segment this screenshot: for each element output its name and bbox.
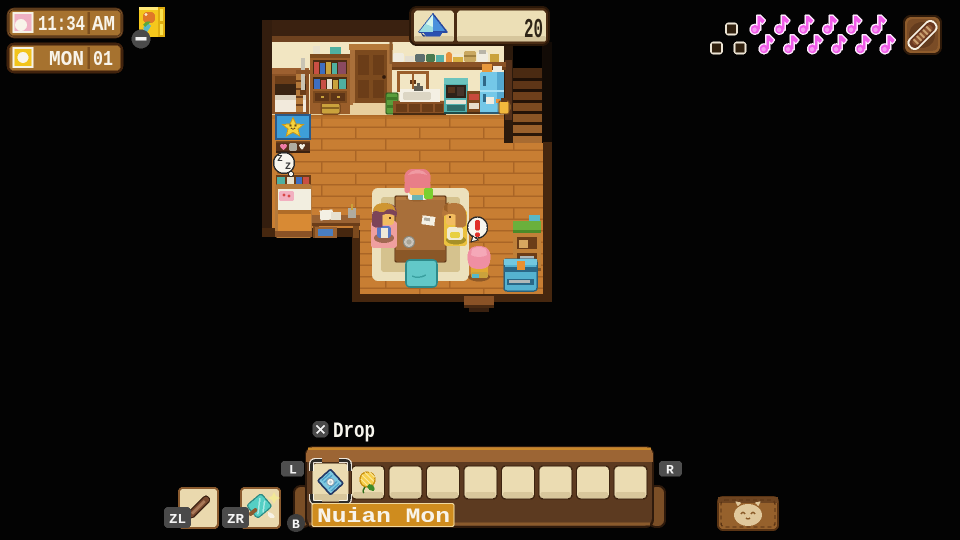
svg-text:11:34: 11:34 (38, 14, 85, 37)
svg-text:R: R (666, 463, 674, 478)
svg-text:ZL: ZL (169, 512, 186, 528)
svg-text:Nuian Mon: Nuian Mon (317, 506, 450, 529)
svg-text:L: L (289, 463, 297, 478)
svg-text:20: 20 (524, 16, 543, 46)
svg-text:B: B (292, 517, 300, 532)
svg-text:ZR: ZR (227, 512, 245, 528)
svg-text:AM: AM (92, 14, 115, 37)
svg-text:Z: Z (277, 154, 282, 164)
svg-text:Drop: Drop (333, 419, 375, 444)
svg-text:MON: MON (49, 49, 84, 72)
svg-text:01: 01 (93, 49, 113, 72)
